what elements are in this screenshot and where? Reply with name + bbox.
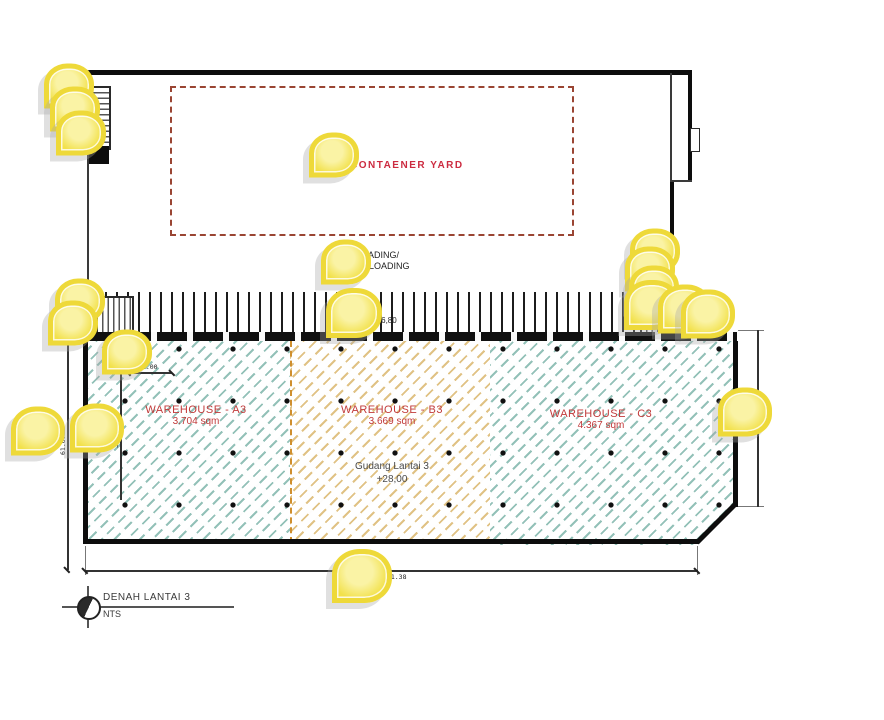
yard-top-wall: [85, 70, 692, 75]
section-bubble-icon: [77, 596, 101, 620]
stair-landing-top-left: [89, 146, 109, 164]
warehouse-b3-name: WAREHOUSE - B3: [302, 404, 482, 416]
label-warehouse-c3: WAREHOUSE - C3 4.367 sqm: [511, 408, 691, 431]
dock-ramp-right: [674, 300, 696, 336]
dim-ext-left-top: [60, 333, 85, 334]
label-warehouse-a3: WAREHOUSE - A3 3.704 sqm: [106, 404, 286, 427]
stair-block-top-left: [89, 86, 111, 150]
dim-left-height: 61.07: [59, 435, 67, 455]
floor-note-line2: +28,00: [302, 473, 482, 486]
warehouse-a3-area: 3.704 sqm: [106, 416, 286, 427]
dock-stair-right: [640, 294, 674, 336]
plan-scale: NTS: [103, 609, 121, 619]
warehouse-south-wall: [83, 539, 699, 544]
dim-line-inner-width: [128, 372, 172, 374]
floor-note: Gudang Lantai 3 +28,00: [302, 460, 482, 486]
warehouse-a3-name: WAREHOUSE - A3: [106, 404, 286, 416]
dock-level-text: +26,80: [372, 316, 397, 325]
zone-warehouse-c3: [490, 341, 737, 545]
loading-label-line1: LOADING/: [356, 250, 410, 261]
warehouse-east-wall: [733, 341, 738, 507]
click-marker-icon: [11, 407, 65, 456]
dim-right-height: 49.28: [749, 412, 757, 432]
right-bay-inner-line: [670, 73, 672, 182]
level-arrow-icon: [366, 318, 371, 324]
dim-bottom-width: 181.38: [383, 573, 406, 581]
floor-plan-canvas: CONTAENER YARD LOADING/ UNLOADING +26,80…: [0, 0, 884, 720]
click-marker-icon: [625, 247, 675, 292]
dim-line-left: [67, 333, 69, 570]
floor-note-line1: Gudang Lantai 3: [302, 460, 482, 473]
warehouse-b3-area: 3.669 sqm: [302, 416, 482, 427]
label-warehouse-b3: WAREHOUSE - B3 3.669 sqm: [302, 404, 482, 427]
right-bay-door: [690, 128, 700, 152]
plan-title: DENAH LANTAI 3: [103, 592, 190, 603]
warehouse-west-wall: [83, 341, 88, 543]
container-yard-label: CONTAENER YARD: [350, 160, 470, 171]
warehouse-c3-area: 4.367 sqm: [511, 420, 691, 431]
yard-right-wall-upper: [688, 70, 692, 182]
loading-label-line2: UNLOADING: [356, 261, 410, 272]
dim-inner-height: 34.00: [112, 428, 120, 448]
dock-stripes: [105, 292, 661, 332]
dim-inner-width: 12.00: [138, 363, 158, 371]
dim-line-right: [757, 330, 759, 507]
zone-warehouse-b3: [290, 341, 494, 543]
warehouse-c3-name: WAREHOUSE - C3: [511, 408, 691, 420]
dim-ext-right-bottom: [738, 506, 764, 507]
dim-line-bottom: [85, 570, 698, 572]
dim-line-inner-height: [120, 373, 122, 500]
dim-ext-right-top: [738, 330, 764, 331]
dock-stair-left: [96, 296, 134, 336]
loading-unloading-label: LOADING/ UNLOADING: [356, 250, 410, 272]
